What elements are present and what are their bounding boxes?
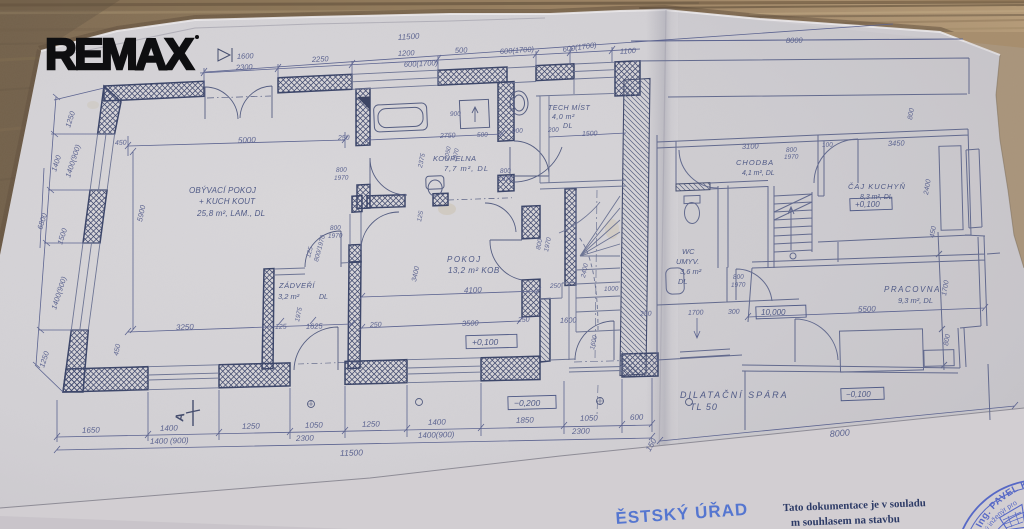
svg-text:1700: 1700 bbox=[688, 309, 704, 317]
svg-text:4100: 4100 bbox=[464, 285, 483, 295]
svg-text:3100: 3100 bbox=[742, 141, 760, 151]
svg-text:1250: 1250 bbox=[242, 422, 261, 431]
svg-text:1500: 1500 bbox=[582, 130, 598, 138]
svg-text:125: 125 bbox=[275, 324, 287, 331]
svg-text:5000: 5000 bbox=[238, 135, 257, 145]
svg-text:1600: 1600 bbox=[560, 315, 578, 325]
svg-text:800: 800 bbox=[500, 168, 511, 175]
svg-text:4,1 m², DL: 4,1 m², DL bbox=[742, 170, 775, 177]
svg-text:2300: 2300 bbox=[295, 434, 315, 444]
svg-text:WC: WC bbox=[682, 247, 695, 256]
svg-text:+0,100: +0,100 bbox=[855, 200, 880, 209]
svg-text:800: 800 bbox=[336, 167, 347, 174]
svg-text:250: 250 bbox=[639, 311, 652, 318]
svg-text:−0,100: −0,100 bbox=[846, 390, 871, 399]
svg-text:−0,200: −0,200 bbox=[514, 398, 541, 408]
svg-text:1050: 1050 bbox=[580, 414, 599, 423]
svg-text:8000: 8000 bbox=[829, 427, 850, 439]
svg-text:1050: 1050 bbox=[305, 421, 324, 430]
svg-text:450: 450 bbox=[115, 140, 127, 147]
svg-text:7,7 m², DL: 7,7 m², DL bbox=[444, 164, 489, 173]
svg-text:1970: 1970 bbox=[731, 281, 746, 289]
svg-text:3500: 3500 bbox=[462, 318, 480, 328]
svg-text:1650: 1650 bbox=[82, 426, 101, 435]
svg-text:11500: 11500 bbox=[340, 447, 364, 458]
svg-text:1200: 1200 bbox=[398, 48, 416, 58]
svg-text:3,2 m²: 3,2 m² bbox=[278, 292, 300, 301]
svg-text:TL 50: TL 50 bbox=[690, 402, 718, 412]
svg-text:+ KUCH KOUT: + KUCH KOUT bbox=[199, 197, 256, 206]
svg-text:500: 500 bbox=[455, 45, 469, 55]
svg-text:900: 900 bbox=[512, 128, 523, 135]
svg-text:800: 800 bbox=[330, 225, 341, 232]
svg-text:CHODBA: CHODBA bbox=[736, 158, 774, 167]
svg-text:DL: DL bbox=[319, 294, 328, 301]
svg-text:3450: 3450 bbox=[888, 138, 906, 148]
svg-text:500: 500 bbox=[477, 132, 488, 139]
svg-text:8000: 8000 bbox=[786, 36, 804, 45]
svg-text:1970: 1970 bbox=[784, 153, 799, 161]
svg-text:1000: 1000 bbox=[604, 285, 619, 293]
svg-text:4,0 m²: 4,0 m² bbox=[552, 114, 575, 121]
svg-text:1970: 1970 bbox=[498, 175, 513, 183]
svg-text:DL: DL bbox=[678, 277, 688, 286]
svg-text:5500: 5500 bbox=[858, 304, 877, 314]
svg-text:1970: 1970 bbox=[328, 232, 343, 240]
svg-text:250: 250 bbox=[369, 322, 382, 329]
svg-text:1625: 1625 bbox=[306, 321, 324, 331]
svg-text:250: 250 bbox=[549, 283, 561, 290]
svg-text:2300: 2300 bbox=[571, 427, 591, 437]
svg-text:POKOJ: POKOJ bbox=[447, 255, 482, 264]
svg-text:2750: 2750 bbox=[439, 132, 456, 140]
svg-text:800: 800 bbox=[733, 274, 744, 281]
svg-text:3250: 3250 bbox=[176, 322, 195, 332]
svg-text:300: 300 bbox=[728, 309, 740, 316]
svg-text:1970: 1970 bbox=[334, 174, 349, 182]
svg-text:2300: 2300 bbox=[235, 62, 254, 72]
svg-text:250: 250 bbox=[517, 317, 530, 324]
svg-text:250: 250 bbox=[337, 135, 350, 142]
svg-text:1250: 1250 bbox=[362, 420, 381, 429]
svg-text:ČAJ KUCHYŇ: ČAJ KUCHYŇ bbox=[848, 182, 906, 191]
svg-text:1100: 1100 bbox=[620, 46, 638, 56]
svg-text:9,3 m², DL: 9,3 m², DL bbox=[898, 296, 933, 305]
svg-text:13,2 m² KOB: 13,2 m² KOB bbox=[448, 266, 500, 275]
svg-text:2250: 2250 bbox=[311, 54, 330, 64]
svg-text:10,000: 10,000 bbox=[761, 308, 786, 317]
svg-text:3,6 m²: 3,6 m² bbox=[680, 267, 702, 276]
svg-text:25,8 m², LAM., DL: 25,8 m², LAM., DL bbox=[196, 209, 265, 218]
svg-text:+0,100: +0,100 bbox=[472, 337, 499, 347]
svg-text:600(1700): 600(1700) bbox=[404, 58, 439, 69]
svg-text:200: 200 bbox=[547, 127, 559, 134]
svg-text:PRACOVNA: PRACOVNA bbox=[884, 285, 941, 294]
svg-text:UMYV.: UMYV. bbox=[676, 257, 699, 266]
svg-text:1850: 1850 bbox=[516, 416, 535, 425]
svg-text:1600: 1600 bbox=[237, 51, 255, 61]
svg-text:REMAX: REMAX bbox=[45, 30, 194, 79]
svg-text:OBÝVACÍ POKOJ: OBÝVACÍ POKOJ bbox=[189, 186, 257, 195]
svg-text:1400(900): 1400(900) bbox=[418, 430, 455, 440]
svg-text:100: 100 bbox=[822, 142, 833, 149]
svg-text:TECH MÍST: TECH MÍST bbox=[548, 103, 590, 112]
svg-text:ZÁDVEŘÍ: ZÁDVEŘÍ bbox=[278, 281, 316, 290]
svg-text:900: 900 bbox=[450, 111, 461, 118]
svg-text:600: 600 bbox=[630, 413, 644, 422]
svg-text:1400 (900): 1400 (900) bbox=[150, 436, 189, 446]
svg-text:DILATAČNÍ SPÁRA: DILATAČNÍ SPÁRA bbox=[680, 390, 789, 400]
svg-text:DL: DL bbox=[563, 123, 573, 130]
svg-text:1400: 1400 bbox=[160, 424, 179, 433]
svg-text:11500: 11500 bbox=[398, 31, 421, 42]
svg-text:1400: 1400 bbox=[428, 418, 447, 427]
